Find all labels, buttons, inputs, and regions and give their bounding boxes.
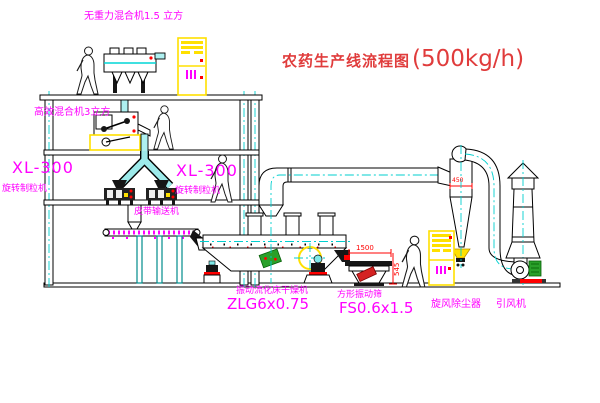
control-cabinet-right xyxy=(429,231,454,285)
dimension-cyclone-diameter: 450 xyxy=(452,178,463,184)
title-capacity: (500kg/h) xyxy=(412,46,524,72)
diagram-title: 农药生产线流程图 (500kg/h) xyxy=(282,46,524,72)
floor-slab-mid xyxy=(44,150,259,155)
process-flow-diagram: 农药生产线流程图 (500kg/h) 无重力混合机1.5 立方 高效混合机3立方… xyxy=(0,0,600,403)
mixer-outlet-pipe xyxy=(155,53,165,59)
floor-slab-top xyxy=(40,95,262,100)
downpipe-level2 xyxy=(141,134,148,153)
dimension-screen-length: 1500 xyxy=(356,245,374,252)
label-dryer-model: ZLG6x0.75 xyxy=(227,297,309,312)
conveyor-post xyxy=(157,236,162,283)
label-screen-model: FS0.6x1.5 xyxy=(339,301,413,316)
label-belt-conveyor: 皮带输送机 xyxy=(134,208,179,217)
label-granulator-center-name: 旋转制粒机 xyxy=(175,187,220,196)
fan-motor xyxy=(529,261,541,276)
label-cyclone: 旋风除尘器 xyxy=(431,300,481,310)
label-fan: 引风机 xyxy=(496,300,526,310)
label-granulator-center-model: XL-300 xyxy=(176,163,238,179)
control-cabinet-top xyxy=(178,38,206,95)
worker-figure-top xyxy=(77,47,98,94)
label-granulator-left-name: 旋转制粒机 xyxy=(2,185,47,194)
conveyor-post xyxy=(177,236,182,283)
vibrating-screen-drawing xyxy=(334,249,397,286)
worker-figure-ground xyxy=(402,236,425,287)
label-gravity-free-mixer: 无重力混合机1.5 立方 xyxy=(84,12,183,22)
fluid-bed-dryer-drawing xyxy=(196,213,350,283)
worker-figure-level2 xyxy=(154,106,173,149)
gravity-free-mixer-drawing xyxy=(104,48,165,93)
granulator-left-drawing xyxy=(104,180,135,205)
dimension-screen-height: 545 xyxy=(394,263,401,276)
conveyor-post xyxy=(137,236,142,283)
induced-draft-fan-drawing xyxy=(511,258,546,283)
label-high-efficiency-mixer: 高效混合机3立方 xyxy=(34,108,110,118)
label-granulator-left-model: XL-300 xyxy=(12,160,74,176)
floor-slab-low xyxy=(44,200,259,205)
granulator-right-drawing xyxy=(146,180,177,205)
title-text: 农药生产线流程图 xyxy=(282,50,410,71)
